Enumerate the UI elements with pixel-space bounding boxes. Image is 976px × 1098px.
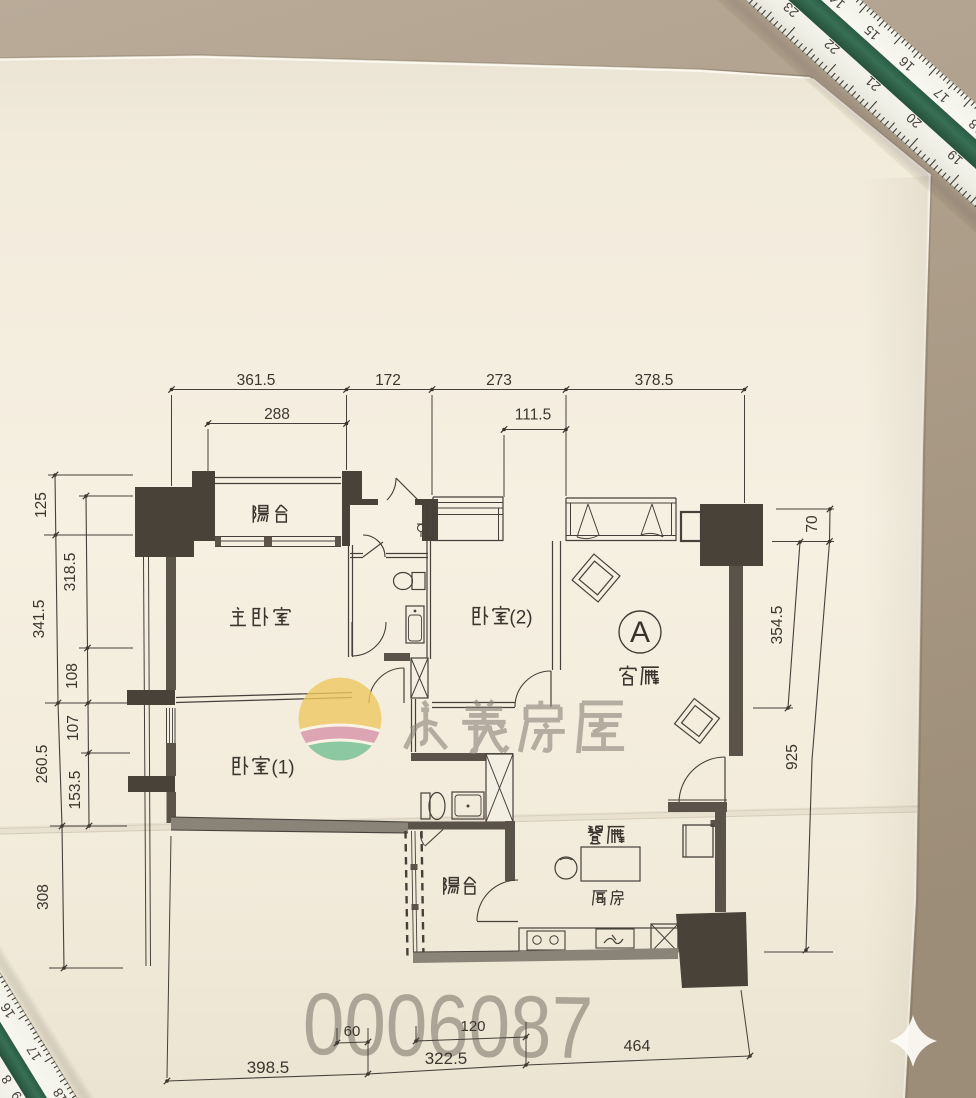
- svg-text:172: 172: [375, 372, 401, 389]
- svg-text:70: 70: [804, 515, 821, 533]
- svg-text:108: 108: [64, 663, 81, 689]
- svg-text:60: 60: [344, 1023, 361, 1040]
- svg-text:322.5: 322.5: [425, 1049, 468, 1068]
- svg-text:378.5: 378.5: [635, 372, 674, 389]
- svg-text:260.5: 260.5: [34, 745, 51, 784]
- svg-text:107: 107: [65, 715, 82, 741]
- svg-text:361.5: 361.5: [237, 372, 276, 389]
- svg-text:125: 125: [33, 492, 50, 518]
- svg-text:111.5: 111.5: [515, 407, 552, 424]
- svg-text:464: 464: [624, 1038, 651, 1055]
- svg-text:120: 120: [460, 1018, 485, 1035]
- svg-text:398.5: 398.5: [247, 1058, 290, 1077]
- svg-text:273: 273: [486, 372, 512, 389]
- svg-text:288: 288: [264, 406, 290, 423]
- svg-text:925: 925: [784, 744, 801, 770]
- svg-text:(2): (2): [509, 608, 532, 629]
- svg-text:308: 308: [35, 884, 52, 910]
- svg-text:318.5: 318.5: [62, 553, 79, 592]
- svg-text:354.5: 354.5: [769, 606, 786, 645]
- svg-text:(1): (1): [271, 758, 294, 779]
- svg-text:A: A: [630, 616, 650, 649]
- svg-text:153.5: 153.5: [67, 771, 84, 810]
- svg-text:341.5: 341.5: [31, 600, 48, 639]
